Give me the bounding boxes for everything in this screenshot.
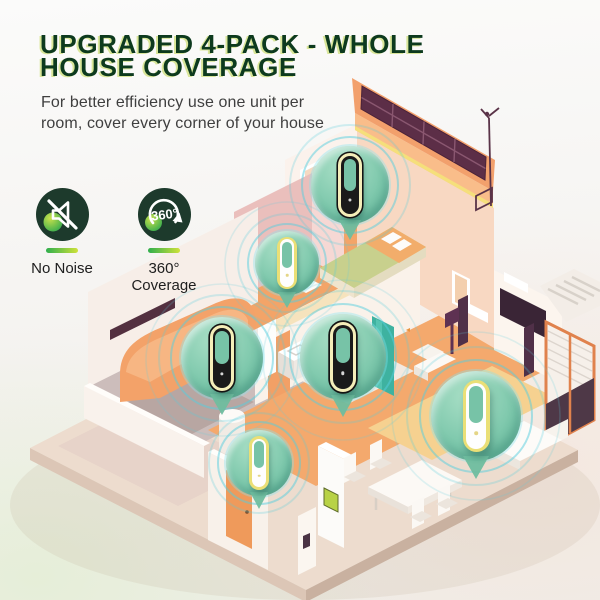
repeller-device [463,380,490,453]
header: UPGRADED 4-PACK - WHOLEHOUSE COVERAGE Fo… [40,33,425,134]
device-ring-opening [282,242,292,268]
repeller-device [330,322,356,392]
device-indicator-dot [341,372,344,375]
product-infographic: UPGRADED 4-PACK - WHOLEHOUSE COVERAGE Fo… [0,0,600,600]
device-ring-opening [215,331,228,365]
device-ring-opening [336,328,350,363]
device-callout-hallway [255,231,319,295]
device-ring-opening [254,441,265,468]
feature-no-noise: No Noise [17,188,107,294]
device-indicator-dot [348,198,351,201]
feature-badges: No Noise 360° 360°Coverage [17,188,209,294]
muted-speaker-icon [36,188,89,241]
feature-360-coverage: 360° 360°Coverage [119,188,209,294]
callout-pointer [339,220,361,240]
device-indicator-dot [220,372,223,375]
device-callout-entry [226,430,292,496]
repeller-device [338,153,361,216]
device-indicator-dot [286,274,289,277]
accent-bar [46,248,78,253]
repeller-device [210,325,235,391]
device-indicator-dot [258,474,261,477]
360-rotation-icon: 360° [138,188,191,241]
callout-pointer [250,492,268,509]
device-callout-living-room [431,371,521,461]
accent-bar [148,248,180,253]
callout-pointer [463,456,489,479]
callout-pointer [278,292,296,308]
page-subtitle: For better efficiency use one unit perro… [41,92,425,134]
repeller-device [249,436,269,489]
callout-pointer [331,395,355,417]
callout-pointer [210,394,234,415]
page-title: UPGRADED 4-PACK - WHOLEHOUSE COVERAGE [40,33,425,79]
device-ring-opening [469,386,483,423]
device-callout-garage [181,317,263,399]
device-indicator-dot [474,431,478,435]
device-ring-opening [344,159,356,191]
feature-label: 360°Coverage [131,260,196,294]
device-callout-bedroom [311,146,389,224]
repeller-device [277,237,296,289]
feature-label: No Noise [31,260,93,277]
device-callout-kitchen [300,314,386,400]
